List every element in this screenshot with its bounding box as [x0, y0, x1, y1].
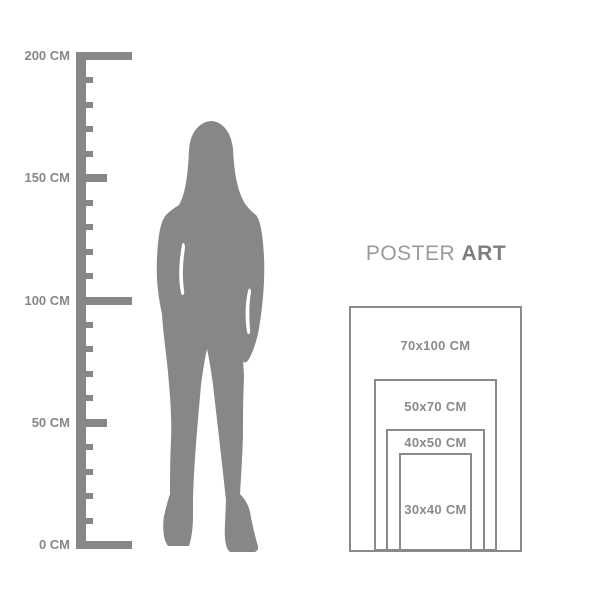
- poster-size-label: 30x40 CM: [376, 502, 496, 518]
- poster-size-label: 40x50 CM: [376, 435, 496, 451]
- poster-size-label: 70x100 CM: [376, 338, 496, 354]
- chart-title-normal: POSTER: [366, 242, 455, 265]
- poster-size-label: 50x70 CM: [376, 399, 496, 415]
- chart-title-bold: ART: [462, 242, 507, 265]
- poster-size-guide: 200 CM150 CM100 CM50 CM0 CM POSTER ART 7…: [0, 0, 600, 600]
- chart-title: POSTER ART: [336, 242, 536, 266]
